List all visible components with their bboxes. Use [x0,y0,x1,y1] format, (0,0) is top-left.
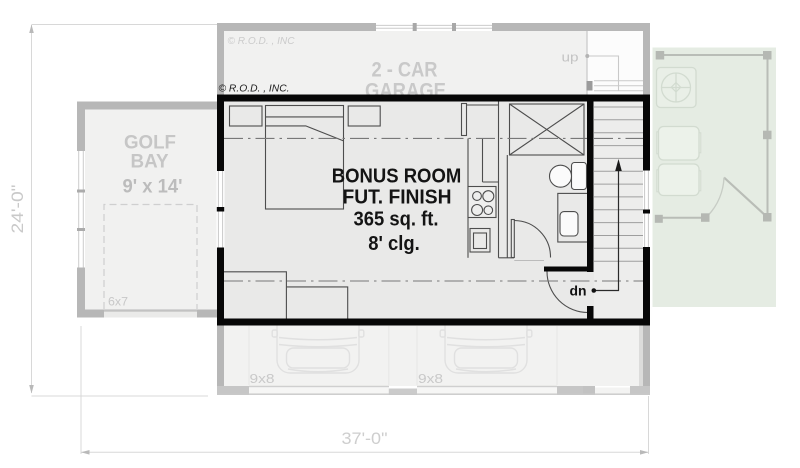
svg-text:FUT. FINISH: FUT. FINISH [343,187,452,209]
svg-text:BONUS ROOM: BONUS ROOM [332,165,462,187]
svg-text:© R.O.D. , INC: © R.O.D. , INC [228,36,296,47]
svg-text:up: up [562,50,579,65]
svg-text:24'-0": 24'-0" [9,184,27,233]
svg-text:9x8: 9x8 [418,372,443,386]
svg-text:8' clg.: 8' clg. [368,233,420,255]
svg-text:© R.O.D. , INC.: © R.O.D. , INC. [219,83,290,95]
svg-text:37'-0": 37'-0" [342,430,388,448]
svg-text:dn: dn [570,283,587,299]
svg-text:2 - CAR: 2 - CAR [372,58,438,81]
svg-text:BAY: BAY [131,151,169,173]
svg-text:9x8: 9x8 [250,372,275,386]
svg-text:365 sq. ft.: 365 sq. ft. [354,209,439,231]
svg-text:6x7: 6x7 [108,294,128,308]
svg-text:9' x 14': 9' x 14' [123,176,183,198]
